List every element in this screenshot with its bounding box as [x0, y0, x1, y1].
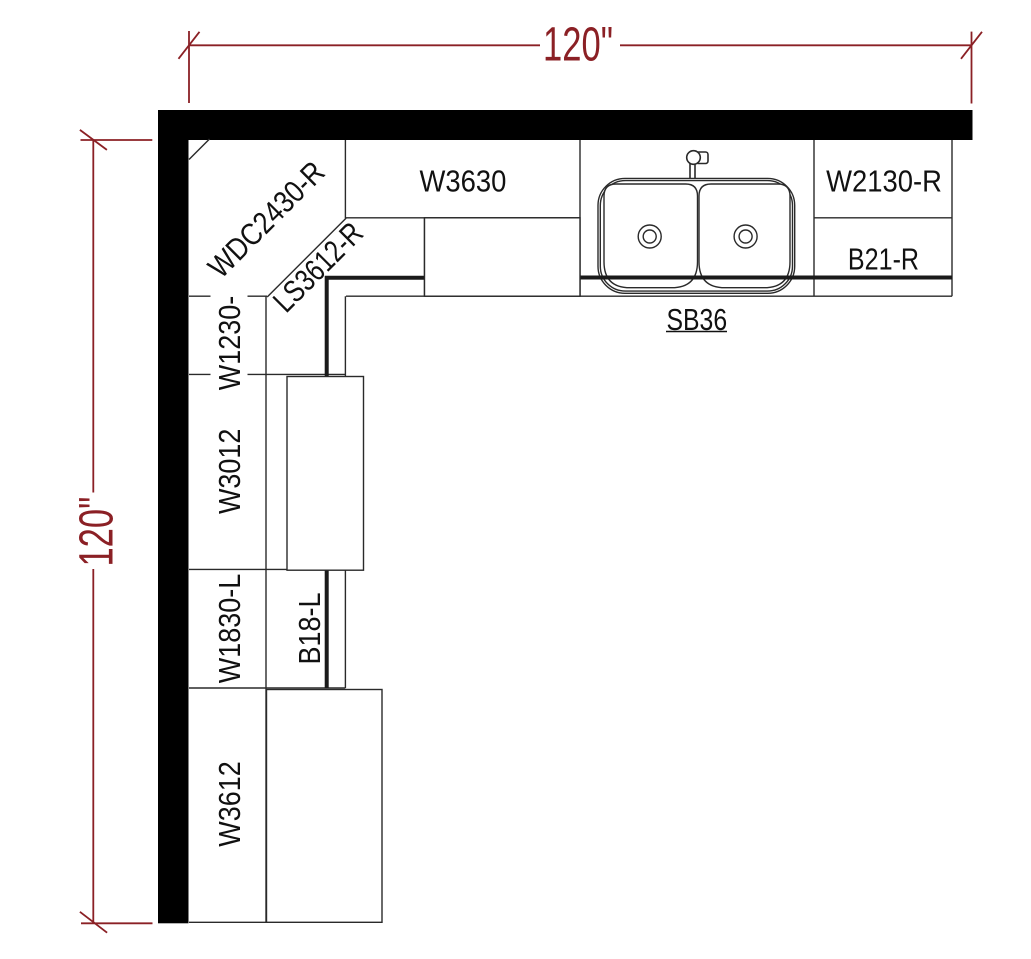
- svg-text:B21-R: B21-R: [848, 241, 919, 276]
- svg-text:W1230-: W1230-: [213, 296, 247, 390]
- svg-text:W3630: W3630: [419, 165, 506, 199]
- svg-text:120": 120": [69, 497, 123, 567]
- svg-text:W3612: W3612: [213, 761, 247, 846]
- svg-text:W3012: W3012: [213, 429, 247, 514]
- svg-text:120": 120": [543, 17, 613, 71]
- svg-text:B18-L: B18-L: [293, 593, 327, 665]
- svg-text:W2130-R: W2130-R: [826, 165, 942, 199]
- svg-text:W1830-L: W1830-L: [213, 574, 247, 683]
